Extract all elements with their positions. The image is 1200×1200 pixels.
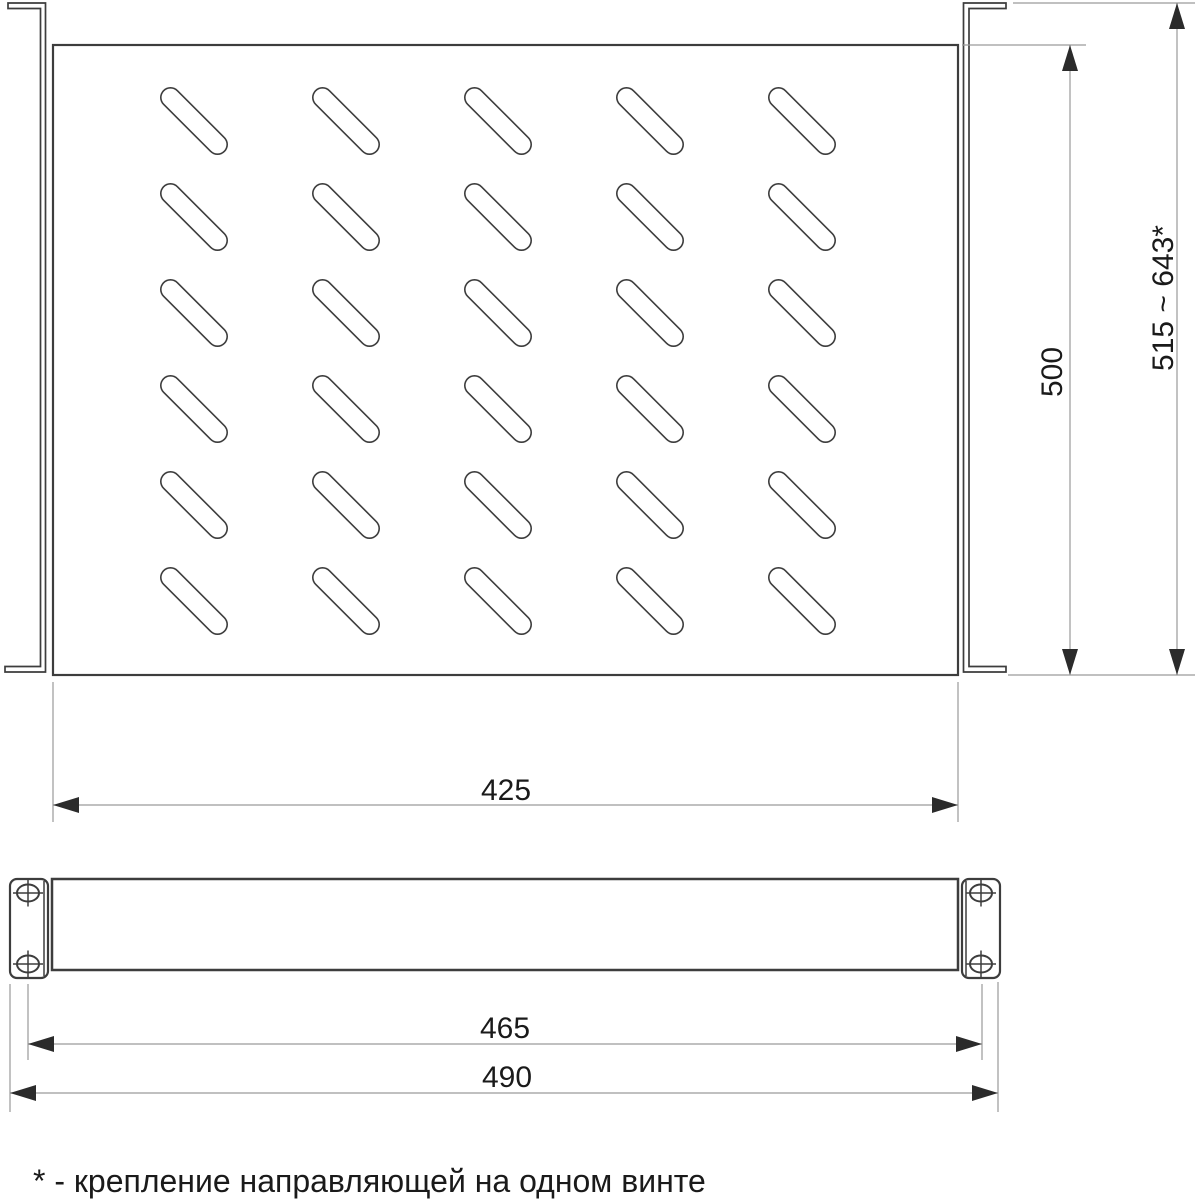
dimension-label-515-643: 515 ~ 643* [1147, 225, 1180, 371]
arrowhead-up [1169, 3, 1185, 29]
arrowhead-down [1062, 649, 1078, 675]
arrowhead-right [932, 797, 958, 813]
top-view: 425 500 515 ~ 643* [5, 3, 1195, 822]
front-view: 465 490 [10, 879, 1000, 1112]
arrowhead-left [53, 797, 79, 813]
arrowhead-right [972, 1085, 998, 1101]
arrowhead-down [1169, 649, 1185, 675]
footnote-text: * - крепление направляющей на одном винт… [33, 1163, 706, 1199]
arrowhead-left [10, 1085, 36, 1101]
arrowhead-right [956, 1036, 982, 1052]
left-mounting-ear [10, 879, 48, 978]
technical-drawing-page: 425 500 515 ~ 643* [0, 0, 1200, 1200]
right-rail-profile [964, 3, 1007, 672]
arrowhead-up [1062, 45, 1078, 71]
front-panel [52, 879, 958, 970]
dimension-465: 465 [28, 984, 982, 1060]
rack-shelf-drawing: 425 500 515 ~ 643* [0, 0, 1200, 1200]
dimension-500: 500 [962, 45, 1086, 675]
dimension-label-500: 500 [1036, 347, 1069, 397]
dimension-515-643: 515 ~ 643* [1008, 3, 1195, 675]
dimension-425: 425 [53, 682, 958, 822]
dimension-label-425: 425 [481, 774, 531, 807]
dimension-490: 490 [10, 982, 998, 1112]
arrowhead-left [28, 1036, 54, 1052]
left-rail-profile [5, 3, 46, 672]
dimension-label-490: 490 [482, 1061, 532, 1094]
dimension-label-465: 465 [480, 1012, 530, 1045]
